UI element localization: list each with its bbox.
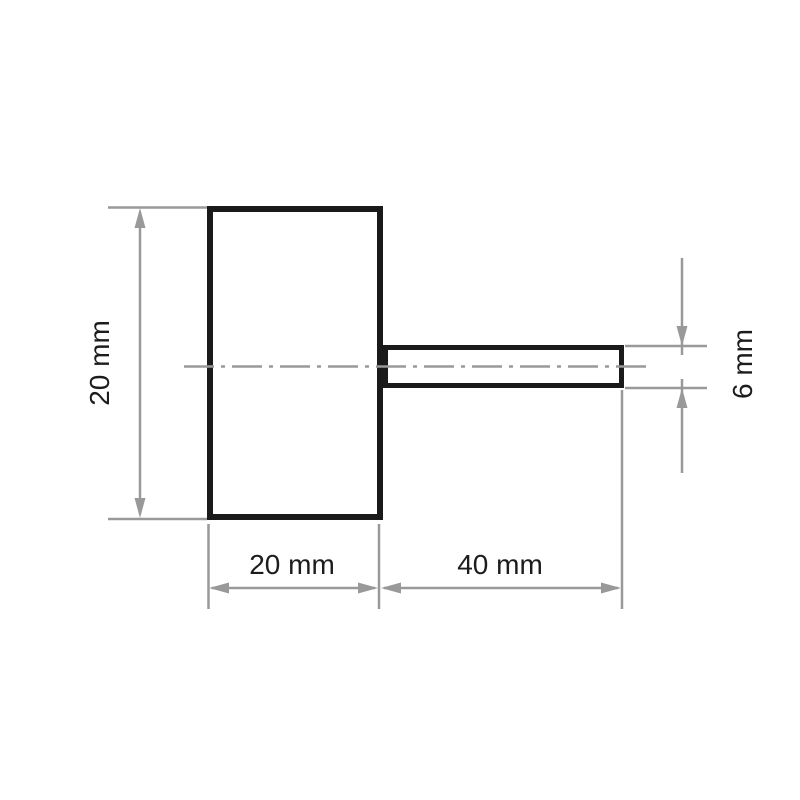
arrowhead-down-icon: [677, 326, 688, 346]
part-outlines: [210, 209, 622, 517]
label-shank-length: 40 mm: [457, 549, 543, 580]
label-body-height: 20 mm: [84, 320, 115, 406]
arrowhead-left-icon: [209, 583, 229, 594]
arrowhead-up-icon: [677, 388, 688, 408]
arrowhead-right-icon: [601, 583, 621, 594]
wheel-body-outline: [210, 209, 380, 517]
arrowhead-up-icon: [135, 208, 146, 228]
arrowhead-down-icon: [135, 498, 146, 518]
label-shank-diameter: 6 mm: [727, 329, 758, 399]
label-body-width: 20 mm: [249, 549, 335, 580]
technical-drawing-page: 20 mm 20 mm 40 mm 6 mm: [0, 0, 800, 800]
dim-shank-diameter-arrowheads: [677, 326, 688, 408]
arrowhead-right-icon: [358, 583, 378, 594]
dim-body-height: [108, 208, 207, 520]
flap-wheel-technical-drawing: 20 mm 20 mm 40 mm 6 mm: [0, 0, 800, 800]
arrowhead-left-icon: [381, 583, 401, 594]
